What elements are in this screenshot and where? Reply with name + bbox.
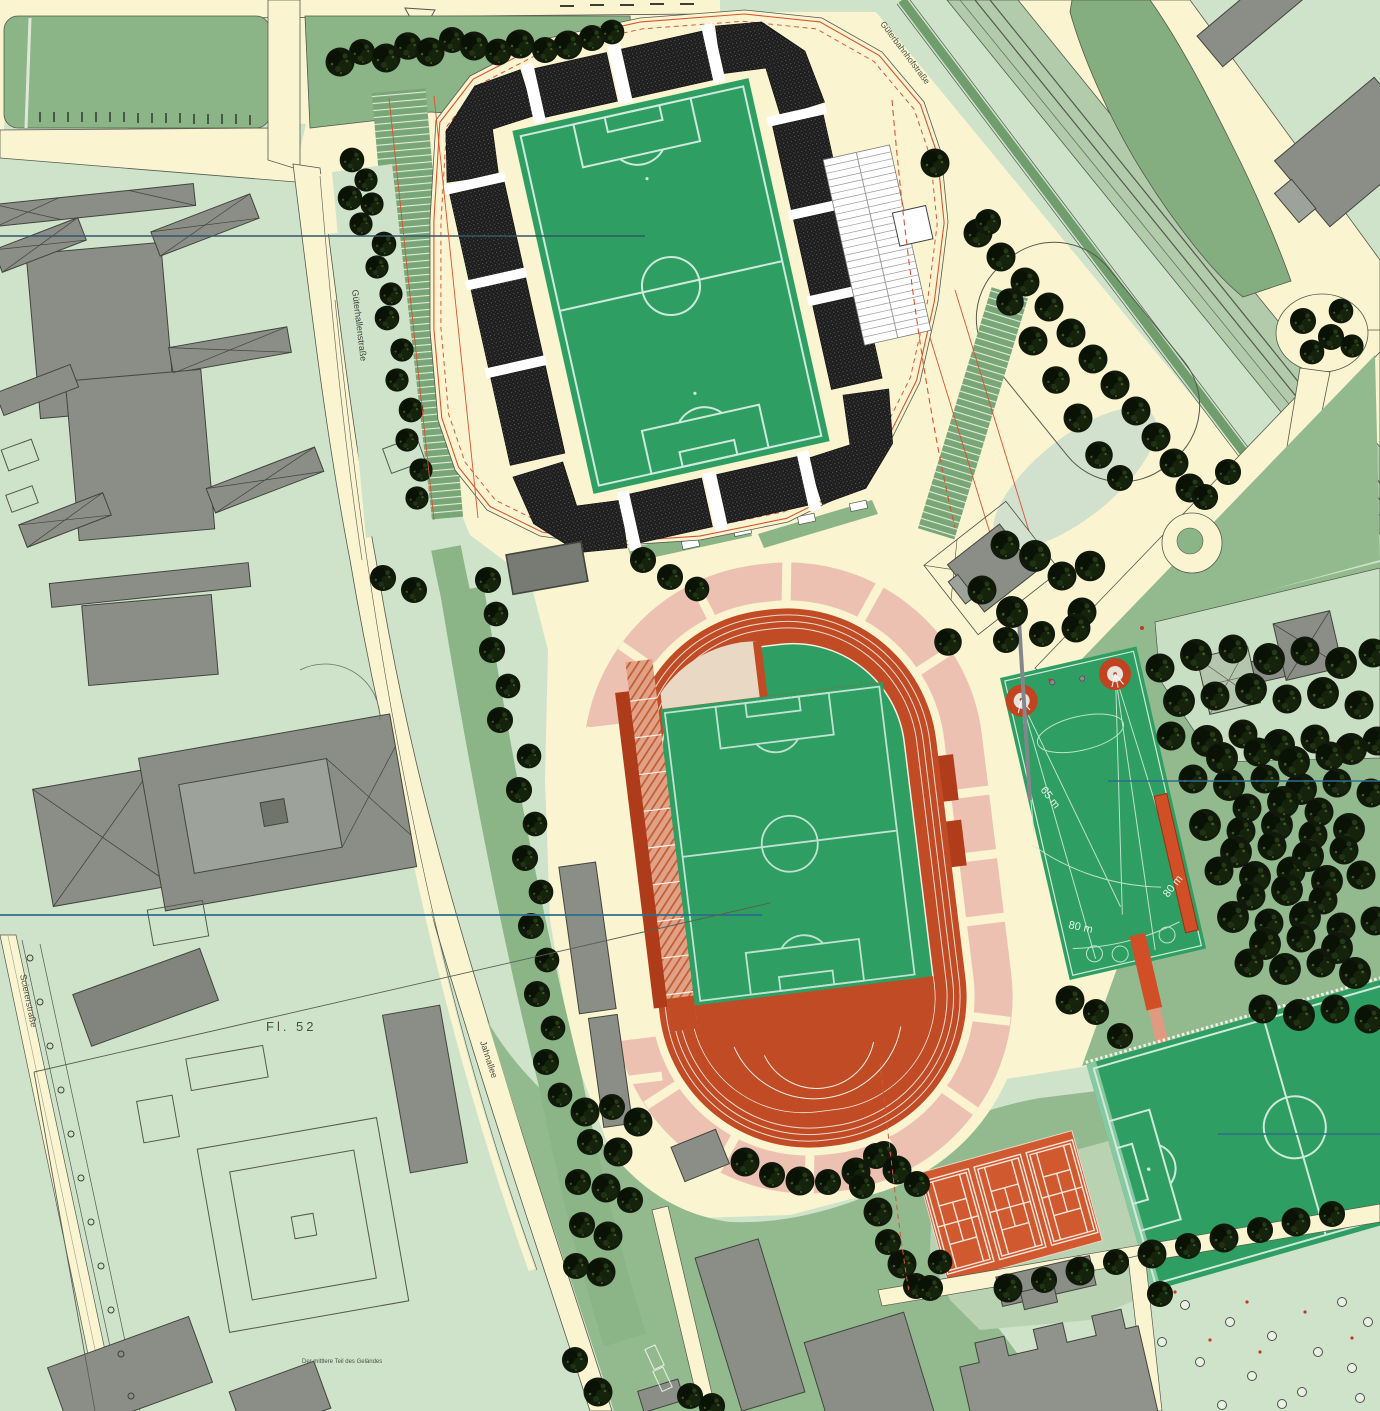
svg-text:Fl. 52: Fl. 52 — [266, 1019, 317, 1034]
svg-text:Der mittlere Teil des Geländes: Der mittlere Teil des Geländes — [302, 1359, 382, 1365]
